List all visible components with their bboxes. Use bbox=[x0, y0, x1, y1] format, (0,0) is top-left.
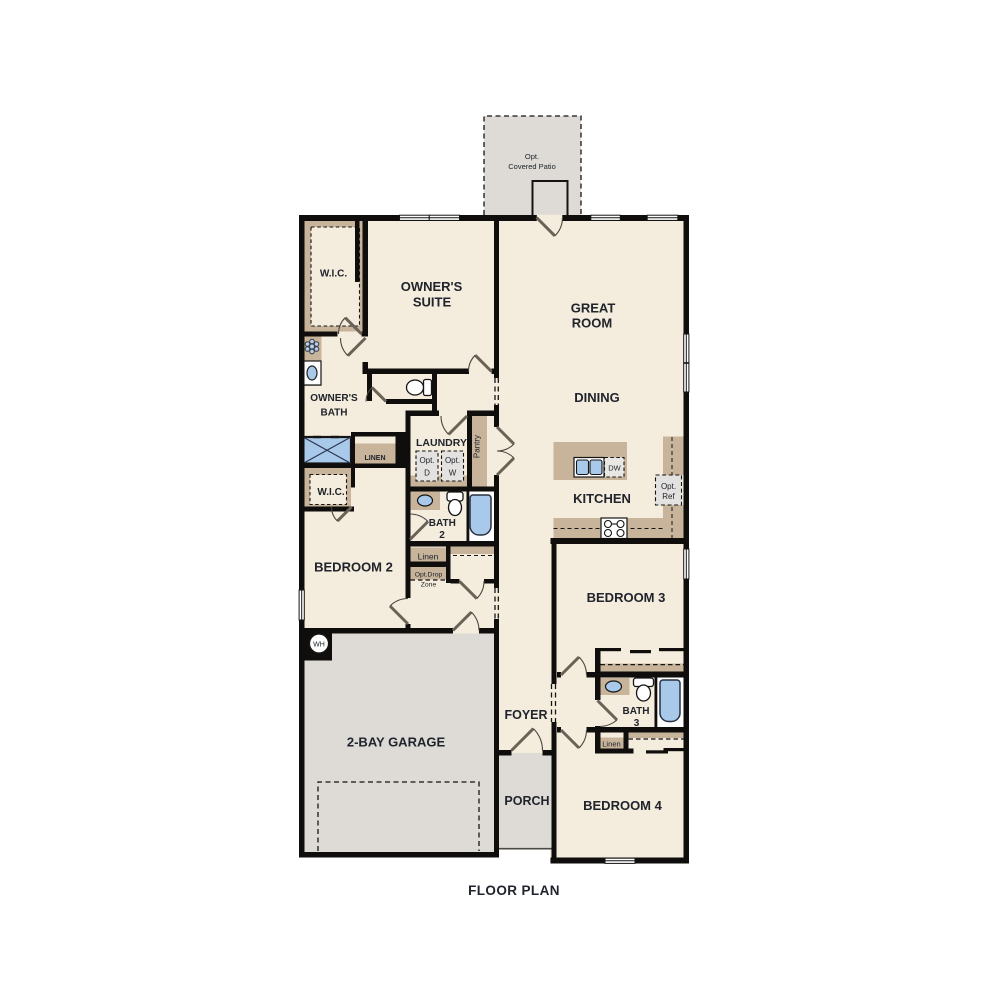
svg-text:GREAT: GREAT bbox=[571, 301, 616, 316]
svg-text:Zone: Zone bbox=[421, 582, 437, 589]
svg-text:Linen: Linen bbox=[418, 552, 439, 562]
svg-text:Opt.Drop: Opt.Drop bbox=[415, 572, 443, 579]
svg-text:Opt.: Opt. bbox=[661, 482, 676, 491]
svg-text:W.I.C.: W.I.C. bbox=[320, 269, 347, 280]
svg-text:DINING: DINING bbox=[574, 390, 620, 405]
svg-text:BATH: BATH bbox=[320, 408, 347, 419]
svg-text:LINEN: LINEN bbox=[365, 455, 386, 462]
svg-text:BEDROOM 2: BEDROOM 2 bbox=[314, 560, 393, 575]
svg-text:WH: WH bbox=[313, 642, 325, 649]
svg-text:Linen: Linen bbox=[602, 740, 621, 749]
svg-text:PORCH: PORCH bbox=[504, 794, 549, 808]
svg-text:FOYER: FOYER bbox=[504, 708, 547, 722]
svg-text:Pantry: Pantry bbox=[473, 435, 482, 458]
svg-text:Opt.: Opt. bbox=[445, 456, 460, 465]
svg-text:BATH: BATH bbox=[429, 518, 456, 529]
svg-text:2: 2 bbox=[439, 530, 445, 541]
svg-text:KITCHEN: KITCHEN bbox=[573, 491, 631, 506]
svg-text:LAUNDRY: LAUNDRY bbox=[416, 437, 467, 449]
svg-text:Ref: Ref bbox=[662, 492, 675, 501]
svg-text:SUITE: SUITE bbox=[413, 295, 452, 310]
svg-text:Opt.: Opt. bbox=[525, 152, 539, 161]
svg-text:Covered Patio: Covered Patio bbox=[508, 162, 556, 171]
svg-text:BEDROOM 4: BEDROOM 4 bbox=[583, 798, 663, 813]
svg-text:ROOM: ROOM bbox=[572, 316, 612, 331]
svg-text:2-BAY GARAGE: 2-BAY GARAGE bbox=[347, 735, 446, 750]
svg-text:OWNER'S: OWNER'S bbox=[310, 393, 358, 404]
svg-text:W.I.C.: W.I.C. bbox=[317, 487, 344, 498]
svg-text:BATH: BATH bbox=[622, 706, 649, 717]
svg-text:FLOOR PLAN: FLOOR PLAN bbox=[468, 883, 560, 898]
svg-text:W: W bbox=[449, 469, 457, 478]
svg-text:OWNER'S: OWNER'S bbox=[401, 279, 463, 294]
svg-text:DW: DW bbox=[608, 464, 621, 473]
svg-text:BEDROOM 3: BEDROOM 3 bbox=[587, 590, 666, 605]
svg-text:Opt.: Opt. bbox=[419, 456, 434, 465]
svg-text:D: D bbox=[424, 469, 430, 478]
